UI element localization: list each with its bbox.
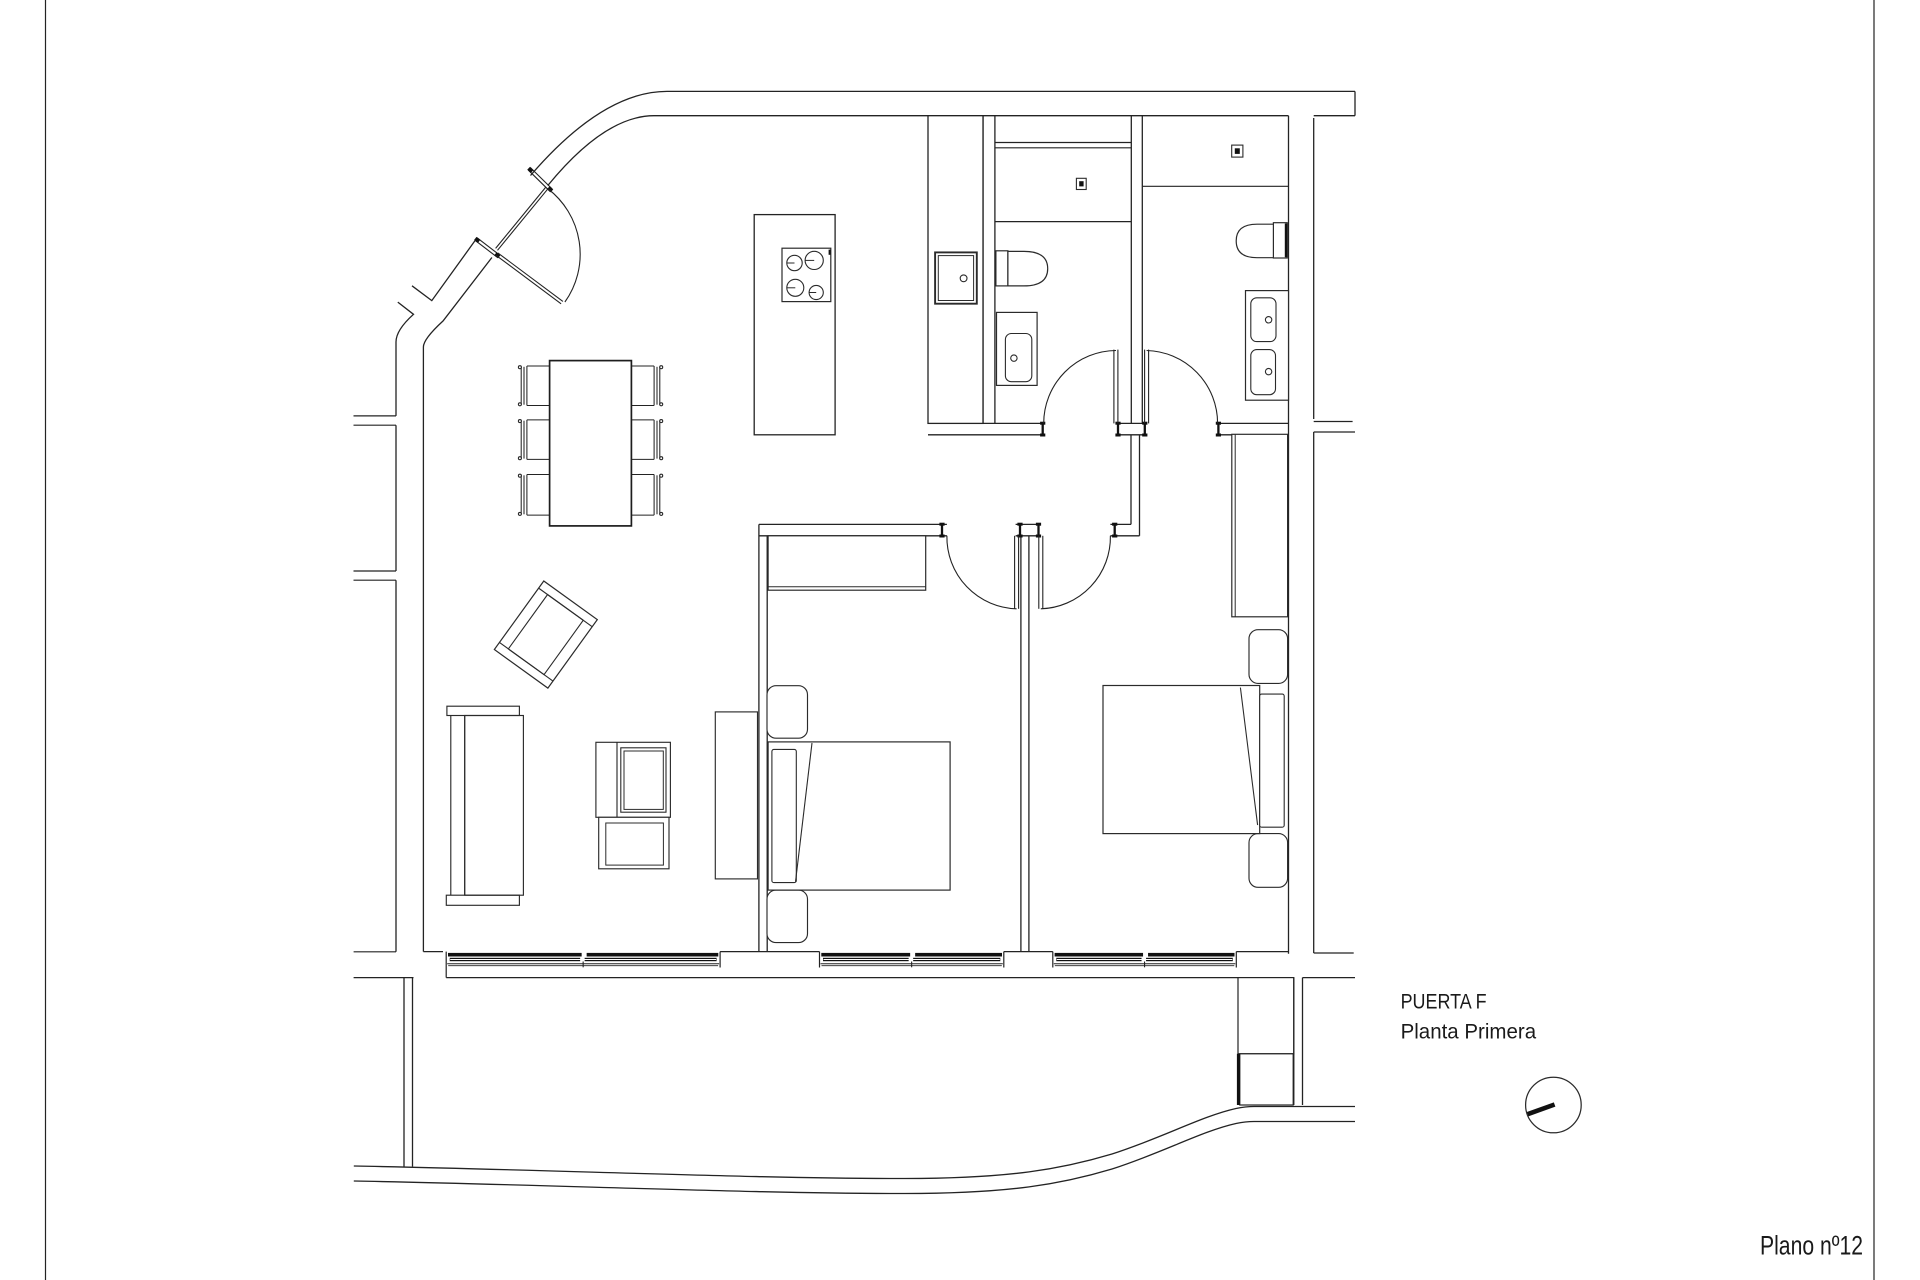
svg-text:PUERTA F: PUERTA F	[1401, 990, 1487, 1014]
svg-text:Planta Primera: Planta Primera	[1401, 1020, 1537, 1044]
svg-text:Plano nº12: Plano nº12	[1760, 1231, 1863, 1261]
